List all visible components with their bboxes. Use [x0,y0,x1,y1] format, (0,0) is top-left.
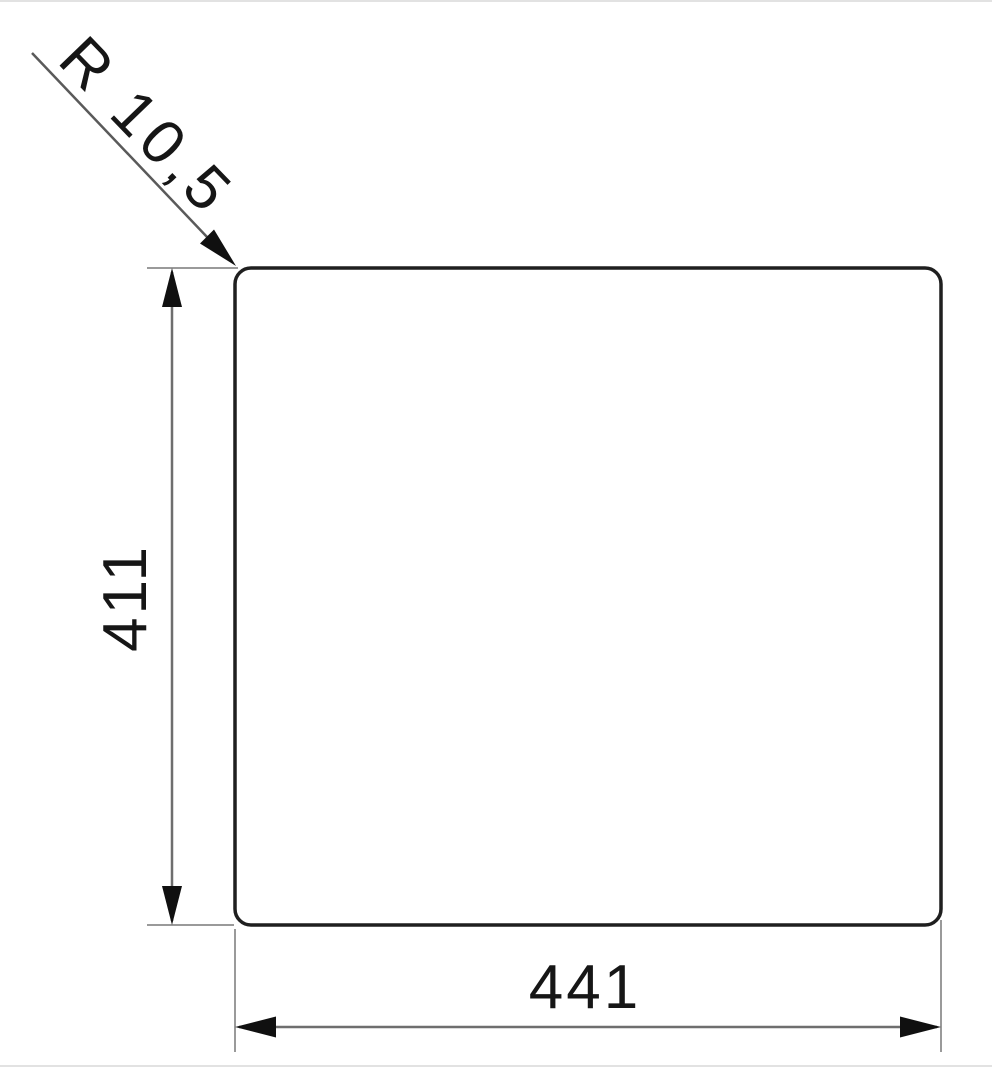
radius-dimension-label: R 10,5 [46,24,248,229]
image-top-border [0,0,992,2]
width-arrowhead-left-icon [235,1017,276,1038]
width-dimension-label: 441 [529,953,641,1022]
width-dimension: 441 [235,920,941,1052]
radius-callout: R 10,5 [32,24,247,266]
cutout-outline [235,268,941,925]
width-arrowhead-right-icon [900,1017,941,1038]
height-arrowhead-up-icon [162,268,182,307]
height-dimension: 411 [91,268,238,925]
height-arrowhead-down-icon [162,886,182,925]
technical-drawing: R 10,5 411 441 [0,0,992,1067]
height-dimension-label: 411 [91,544,160,652]
drawing-canvas: R 10,5 411 441 [0,0,992,1067]
